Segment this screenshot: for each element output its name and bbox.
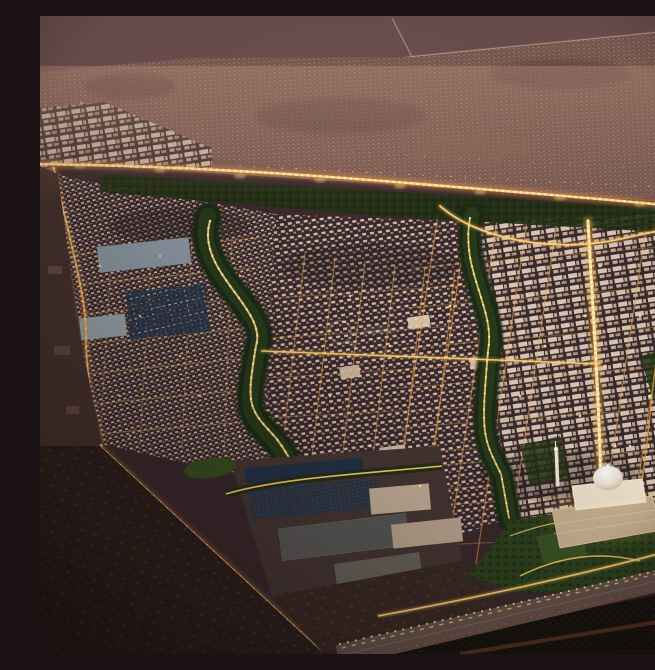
render-canvas	[40, 16, 655, 654]
aerial-city-render	[40, 16, 655, 654]
corner-shadow	[40, 16, 655, 654]
